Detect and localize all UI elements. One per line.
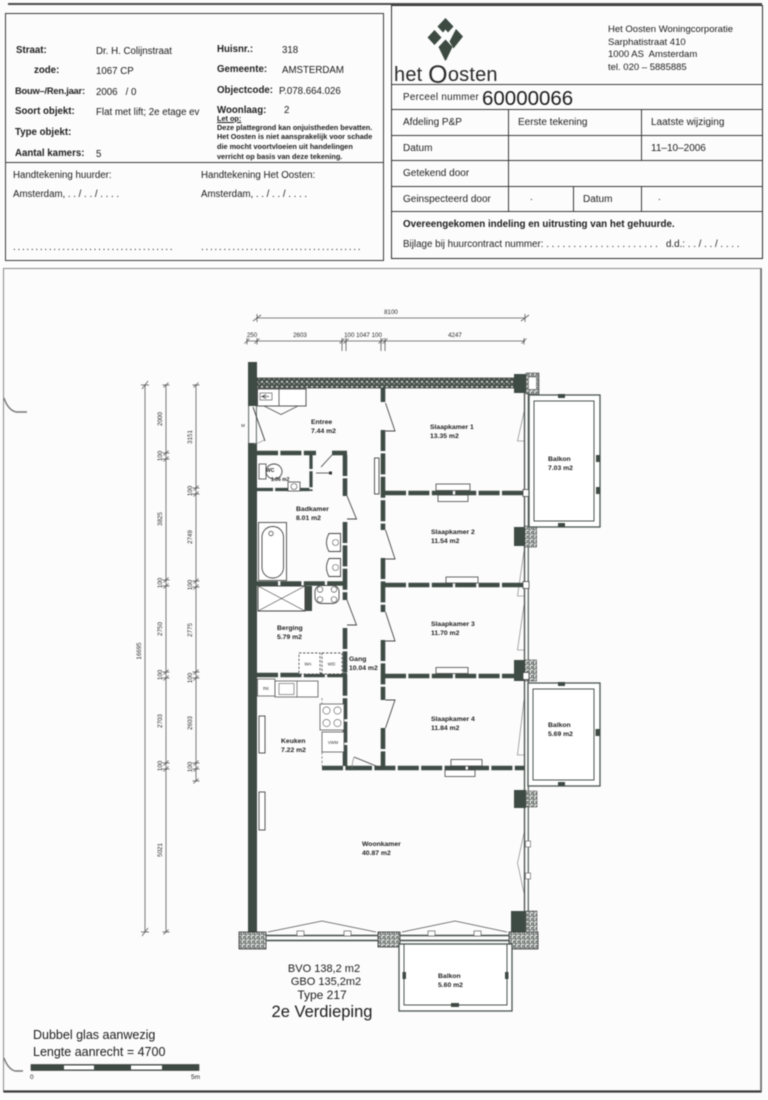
svg-text:BVO 138,2 m2: BVO 138,2 m2	[288, 963, 360, 975]
svg-text:100: 100	[187, 761, 194, 772]
svg-text:100: 100	[157, 669, 164, 680]
svg-text:Slaapkamer 1: Slaapkamer 1	[430, 424, 474, 431]
svg-text:Slaapkamer 2: Slaapkamer 2	[431, 529, 475, 536]
svg-text:100: 100	[187, 579, 194, 590]
svg-text:5.79 m2: 5.79 m2	[277, 634, 302, 641]
svg-text:2703: 2703	[157, 714, 164, 728]
svg-text:13.35 m2: 13.35 m2	[430, 433, 459, 440]
svg-text:2e Verdieping: 2e Verdieping	[272, 1003, 373, 1021]
svg-text:2603: 2603	[187, 716, 194, 730]
svg-text:7.44 m2: 7.44 m2	[311, 428, 336, 435]
svg-text:Dubbel glas aanwezig: Dubbel glas aanwezig	[33, 1028, 155, 1042]
svg-text:100: 100	[157, 577, 164, 588]
svg-text:RK: RK	[263, 686, 269, 691]
svg-text:10.04 m2: 10.04 m2	[349, 665, 378, 672]
svg-text:250: 250	[247, 332, 258, 339]
svg-text:2603: 2603	[293, 332, 307, 339]
svg-text:Keuken: Keuken	[281, 738, 306, 745]
svg-text:8100: 8100	[384, 309, 398, 316]
svg-text:Badkamer: Badkamer	[296, 506, 329, 513]
svg-text:WA: WA	[304, 662, 312, 667]
svg-text:11.84 m2: 11.84 m2	[431, 725, 460, 732]
svg-text:40.87 m2: 40.87 m2	[362, 850, 391, 857]
svg-text:WD: WD	[328, 662, 336, 667]
svg-text:2000: 2000	[157, 412, 164, 426]
svg-text:3825: 3825	[157, 512, 164, 526]
svg-text:Gang: Gang	[349, 656, 366, 663]
svg-text:Slaapkamer 3: Slaapkamer 3	[431, 621, 475, 628]
svg-text:100: 100	[187, 672, 194, 683]
svg-text:Woonkamer: Woonkamer	[362, 841, 401, 848]
svg-text:8.01 m2: 8.01 m2	[296, 515, 321, 522]
svg-text:7.22 m2: 7.22 m2	[281, 747, 306, 754]
svg-text:100 1047 100: 100 1047 100	[344, 332, 382, 339]
svg-text:Type 217: Type 217	[297, 988, 347, 1002]
svg-text:Lengte aanrecht = 4700: Lengte aanrecht = 4700	[33, 1045, 165, 1059]
svg-text:7.03 m2: 7.03 m2	[548, 465, 573, 472]
svg-text:2749: 2749	[187, 530, 194, 544]
svg-text:100: 100	[157, 760, 164, 771]
svg-text:GBO 135,2m2: GBO 135,2m2	[291, 976, 361, 988]
svg-text:5.69 m2: 5.69 m2	[548, 731, 573, 738]
svg-text:Berging: Berging	[277, 625, 303, 632]
svg-text:Balkon: Balkon	[548, 456, 571, 463]
svg-text:Balkon: Balkon	[438, 973, 461, 980]
svg-text:M: M	[241, 423, 245, 428]
svg-text:16695: 16695	[136, 642, 143, 660]
svg-text:11.54 m2: 11.54 m2	[431, 538, 460, 545]
svg-text:100: 100	[157, 450, 164, 461]
svg-text:5.60 m2: 5.60 m2	[438, 982, 463, 989]
svg-text:Slaapkamer 4: Slaapkamer 4	[431, 716, 475, 723]
svg-text:1.06 m2: 1.06 m2	[271, 477, 290, 483]
svg-text:0: 0	[30, 1074, 34, 1081]
svg-text:4247: 4247	[448, 332, 462, 339]
svg-text:Entree: Entree	[311, 419, 332, 426]
svg-text:5021: 5021	[157, 843, 164, 857]
svg-text:3151: 3151	[187, 430, 194, 444]
svg-text:2775: 2775	[187, 623, 194, 637]
svg-text:WC: WC	[266, 468, 275, 474]
svg-text:11.70 m2: 11.70 m2	[431, 630, 460, 637]
svg-text:VWM: VWM	[328, 740, 339, 745]
svg-text:2750: 2750	[157, 622, 164, 636]
svg-text:100: 100	[187, 485, 194, 496]
svg-text:Balkon: Balkon	[548, 722, 571, 729]
svg-text:5m: 5m	[191, 1074, 200, 1081]
